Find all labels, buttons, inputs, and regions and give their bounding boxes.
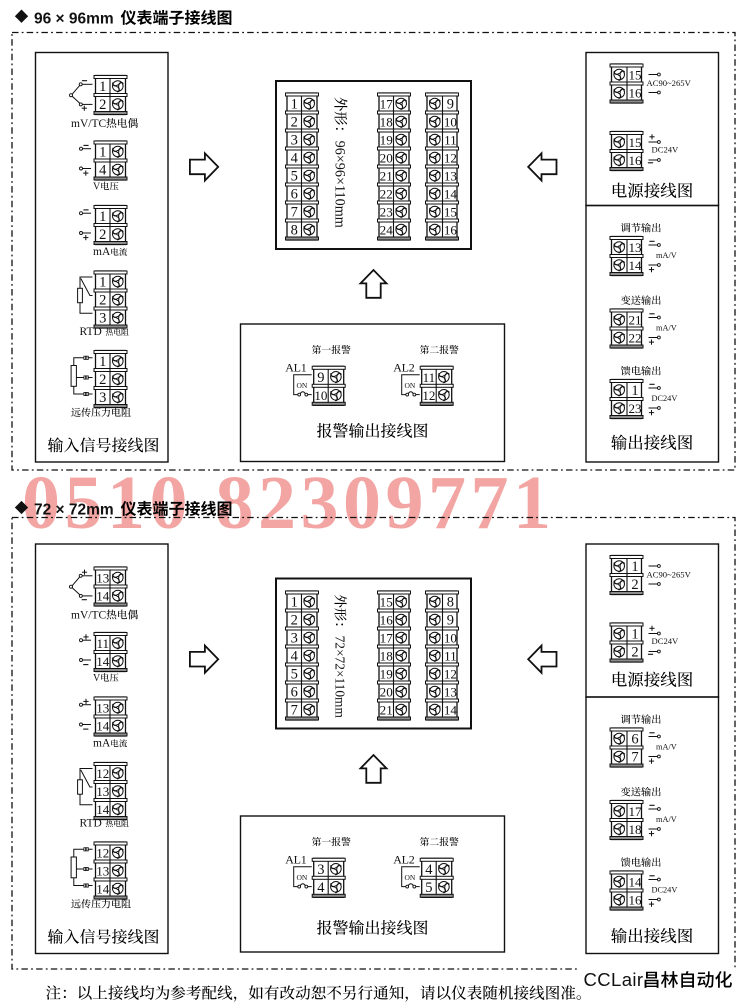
svg-text:2: 2	[631, 577, 638, 593]
svg-text:2: 2	[99, 97, 106, 113]
svg-text:72×72×110mm: 72×72×110mm	[333, 636, 348, 719]
svg-text:1: 1	[631, 559, 638, 575]
svg-text:CCLair: CCLair	[584, 969, 644, 990]
svg-text:8: 8	[447, 595, 454, 611]
svg-text:21: 21	[380, 169, 393, 184]
svg-text:3: 3	[317, 862, 324, 878]
svg-text:18: 18	[380, 649, 394, 664]
svg-text:AL2: AL2	[393, 360, 415, 374]
svg-text:13: 13	[444, 685, 458, 700]
svg-text:2: 2	[291, 115, 298, 131]
svg-text:4: 4	[99, 163, 107, 179]
svg-text:12: 12	[422, 388, 435, 403]
svg-text:4: 4	[291, 649, 299, 665]
svg-text:2: 2	[291, 613, 298, 629]
svg-text:20: 20	[380, 685, 394, 700]
svg-text:4: 4	[425, 862, 433, 878]
svg-text:mA/V: mA/V	[656, 815, 677, 824]
svg-text:11: 11	[423, 370, 436, 385]
svg-text:96 × 96mm: 96 × 96mm	[34, 11, 114, 28]
svg-text:21: 21	[380, 703, 393, 718]
svg-text:12: 12	[96, 766, 109, 781]
svg-text:13: 13	[96, 784, 110, 799]
svg-text:1: 1	[291, 595, 298, 611]
svg-text:11: 11	[444, 649, 457, 664]
svg-text:14: 14	[444, 703, 458, 718]
svg-text:23: 23	[628, 401, 642, 416]
svg-text:2: 2	[99, 372, 106, 388]
svg-text:1: 1	[99, 209, 106, 225]
svg-text:5: 5	[291, 169, 298, 185]
svg-text:AC90~265V: AC90~265V	[647, 569, 692, 579]
svg-text:13: 13	[96, 571, 110, 586]
svg-text:14: 14	[628, 875, 642, 890]
svg-text:7: 7	[291, 703, 298, 719]
svg-text:17: 17	[380, 97, 394, 112]
svg-text:RTD: RTD	[80, 818, 102, 830]
svg-text:14: 14	[96, 589, 110, 604]
svg-text:7: 7	[631, 750, 638, 766]
svg-text:14: 14	[96, 882, 110, 897]
svg-text:AL1: AL1	[285, 852, 307, 866]
svg-text:4: 4	[291, 151, 299, 167]
svg-text:19: 19	[380, 667, 394, 682]
svg-text:mV/TC: mV/TC	[71, 610, 106, 622]
svg-text:9: 9	[447, 613, 454, 629]
svg-text:RTD: RTD	[80, 326, 102, 338]
svg-text:13: 13	[444, 169, 458, 184]
svg-text:1: 1	[99, 145, 106, 161]
svg-text:14: 14	[628, 258, 642, 273]
svg-text:DC24V: DC24V	[652, 636, 680, 646]
svg-text:15: 15	[628, 68, 642, 83]
svg-text:5: 5	[291, 667, 298, 683]
svg-text:10: 10	[444, 631, 458, 646]
svg-text:12: 12	[444, 151, 457, 166]
svg-text:7: 7	[291, 205, 298, 221]
svg-text:13: 13	[628, 240, 642, 255]
svg-text:ON: ON	[296, 873, 307, 882]
svg-text:17: 17	[628, 804, 642, 819]
svg-text:2: 2	[99, 293, 106, 309]
svg-text:14: 14	[96, 719, 110, 734]
svg-text:11: 11	[96, 636, 109, 651]
svg-text:DC24V: DC24V	[652, 394, 678, 403]
svg-text:10: 10	[314, 388, 328, 403]
svg-text:19: 19	[380, 133, 394, 148]
svg-text:12: 12	[444, 667, 457, 682]
svg-text:ON: ON	[404, 381, 415, 390]
svg-text:5: 5	[425, 880, 432, 896]
svg-text:17: 17	[380, 631, 394, 646]
svg-text:14: 14	[96, 802, 110, 817]
svg-text:1: 1	[99, 354, 106, 370]
svg-text:2: 2	[99, 227, 106, 243]
svg-text:mA/V: mA/V	[656, 324, 677, 333]
svg-text:24: 24	[380, 223, 394, 238]
svg-text:14: 14	[96, 654, 110, 669]
svg-text:AL2: AL2	[393, 852, 415, 866]
svg-text:3: 3	[291, 631, 298, 647]
svg-text:96×96×110mm: 96×96×110mm	[332, 141, 348, 228]
svg-text:6: 6	[291, 187, 298, 203]
svg-text:2: 2	[631, 645, 638, 661]
svg-text:V: V	[93, 673, 101, 684]
svg-text:mA/V: mA/V	[656, 743, 677, 752]
svg-text:AC90~265V: AC90~265V	[647, 78, 692, 88]
svg-text:18: 18	[380, 115, 394, 130]
svg-text:10: 10	[444, 115, 458, 130]
svg-text:mA: mA	[93, 246, 111, 258]
svg-text:16: 16	[444, 223, 458, 238]
svg-text:ON: ON	[404, 873, 415, 882]
svg-text:1: 1	[99, 275, 106, 291]
svg-text:mA/V: mA/V	[656, 251, 677, 260]
svg-text:3: 3	[99, 390, 106, 406]
svg-text:9: 9	[447, 97, 454, 113]
svg-text:12: 12	[96, 846, 109, 861]
svg-text:14: 14	[444, 187, 458, 202]
svg-text:11: 11	[444, 133, 457, 148]
svg-text:21: 21	[628, 313, 641, 328]
svg-text:16: 16	[380, 613, 394, 628]
svg-text:20: 20	[380, 151, 394, 166]
svg-text:4: 4	[317, 880, 325, 896]
svg-text:AL1: AL1	[285, 360, 307, 374]
svg-text:22: 22	[628, 331, 641, 346]
svg-text:15: 15	[380, 595, 394, 610]
svg-text:DC24V: DC24V	[652, 145, 680, 155]
svg-text:1: 1	[631, 627, 638, 643]
svg-text:V: V	[93, 182, 101, 193]
svg-text:15: 15	[444, 205, 458, 220]
svg-text:1: 1	[99, 79, 106, 95]
svg-text:22: 22	[380, 187, 393, 202]
svg-text:18: 18	[628, 822, 642, 837]
svg-text:9: 9	[317, 370, 324, 386]
svg-text:72 × 72mm: 72 × 72mm	[34, 502, 114, 519]
svg-text:6: 6	[291, 685, 298, 701]
svg-text:3: 3	[291, 133, 298, 149]
svg-text:1: 1	[291, 97, 298, 113]
svg-text:13: 13	[96, 864, 110, 879]
svg-text:8: 8	[291, 223, 298, 239]
svg-text:ON: ON	[296, 381, 307, 390]
svg-text:13: 13	[96, 701, 110, 716]
svg-text:16: 16	[628, 893, 642, 908]
svg-text:3: 3	[99, 311, 106, 327]
svg-text:DC24V: DC24V	[652, 886, 678, 895]
svg-text:6: 6	[631, 732, 638, 748]
svg-text:15: 15	[628, 135, 642, 150]
svg-text:23: 23	[380, 205, 394, 220]
svg-text:1: 1	[631, 383, 638, 399]
svg-text:mV/TC: mV/TC	[71, 118, 106, 130]
svg-text:mA: mA	[93, 738, 111, 750]
svg-text:16: 16	[628, 86, 642, 101]
svg-text:16: 16	[628, 153, 642, 168]
